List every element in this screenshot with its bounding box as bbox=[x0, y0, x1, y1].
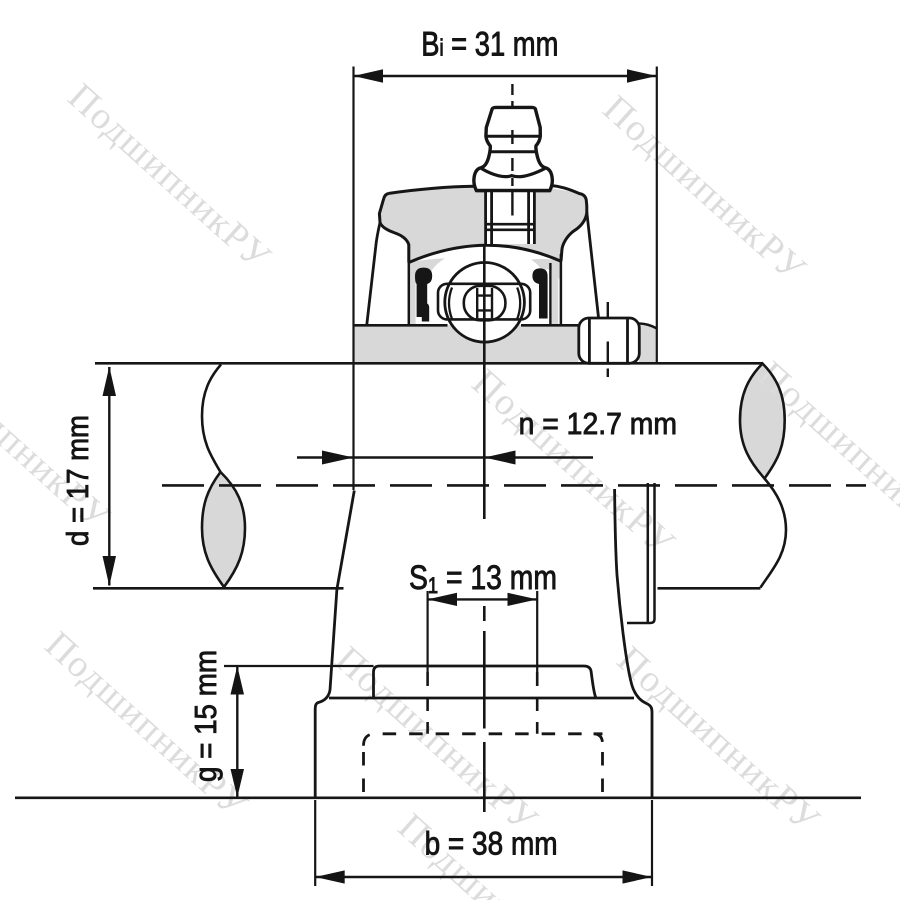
svg-text:n = 12.7 mm: n = 12.7 mm bbox=[519, 406, 677, 441]
svg-text:g = 15 mm: g = 15 mm bbox=[188, 650, 223, 782]
svg-text:b = 38 mm: b = 38 mm bbox=[425, 826, 558, 862]
svg-text:d = 17 mm: d = 17 mm bbox=[60, 415, 95, 546]
